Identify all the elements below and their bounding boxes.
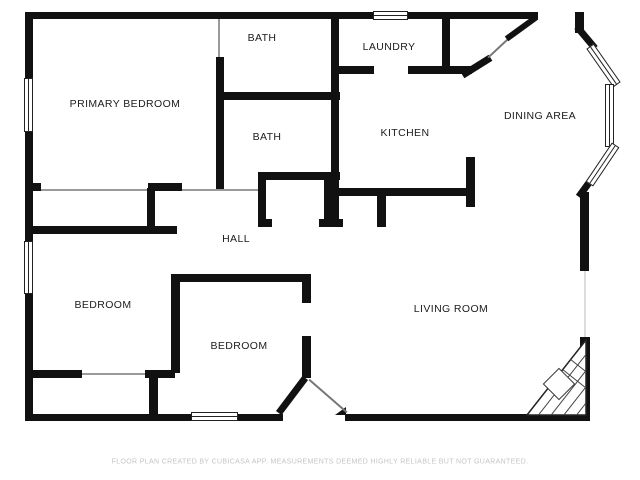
wall-hall-closet-top — [258, 172, 340, 180]
wall-hall-closet-left — [258, 180, 266, 219]
room-label-bedroom-left: BEDROOM — [74, 299, 131, 311]
wall-bedroom-left-bottom-a — [33, 370, 82, 378]
room-label-kitchen: KITCHEN — [381, 127, 430, 139]
wall-top-left — [25, 12, 375, 19]
window-left-primary-bedroom — [24, 78, 33, 132]
floor-plan: PRIMARY BEDROOM BATH BATH LAUNDRY KITCHE… — [0, 0, 640, 480]
wall-kitchen-left-foot — [331, 219, 343, 227]
wall-top-right — [407, 12, 538, 19]
room-label-laundry: LAUNDRY — [363, 41, 416, 53]
wall-primary-closet-left-stub — [33, 183, 41, 191]
wall-bottom-middle — [236, 414, 283, 421]
wall-bath-divider — [220, 92, 340, 100]
room-label-bedroom-lower: BEDROOM — [210, 340, 267, 352]
disclaimer-text: FLOOR PLAN CREATED BY CUBICASA APP. MEAS… — [112, 459, 529, 466]
room-label-living-room: LIVING ROOM — [414, 303, 488, 315]
window-bay-lower — [586, 143, 620, 187]
opening-hall-primary — [182, 189, 258, 191]
wall-kitchen-right — [466, 157, 475, 207]
opening-bath-upper — [218, 19, 220, 58]
door-leaf-entry — [276, 376, 308, 415]
wall-left-upper — [25, 12, 33, 80]
wall-hall-closet-left-foot — [258, 219, 272, 227]
window-bay-middle — [605, 84, 614, 147]
room-label-dining-area: DINING AREA — [504, 110, 576, 122]
window-top-laundry — [373, 11, 408, 20]
fireplace-icon — [526, 339, 587, 416]
wall-right-opening — [584, 271, 586, 337]
room-label-hall: HALL — [222, 233, 250, 245]
wall-kitchen-stub-down — [377, 196, 386, 227]
wall-bedroom-lower-top — [171, 274, 311, 282]
wall-right-upper — [580, 192, 589, 271]
window-bottom-bedroom — [191, 412, 238, 421]
wall-closet-strip-vertical — [149, 370, 158, 421]
room-label-primary-bedroom: PRIMARY BEDROOM — [70, 98, 181, 110]
wall-laundry-bottom-left — [331, 66, 374, 74]
wall-bedroom-lower-right-upper — [302, 282, 311, 303]
window-left-bedroom — [24, 241, 33, 294]
closet-doors-primary — [41, 189, 148, 191]
door-swing-entry — [308, 379, 347, 413]
room-label-bath-upper: BATH — [248, 32, 277, 44]
wall-primary-bath — [216, 57, 224, 191]
wall-left-lower — [25, 292, 33, 421]
wall-bottom-left — [25, 414, 193, 421]
wall-bedroom-lower-right-lower — [302, 336, 311, 378]
closet-doors-bedroom-left — [82, 373, 145, 375]
wall-bedroom-lower-left — [171, 282, 180, 373]
window-bay-upper — [586, 44, 620, 88]
wall-kitchen-bottom — [337, 188, 470, 196]
room-label-bath-lower: BATH — [253, 131, 282, 143]
wall-bedroom-left-top — [25, 226, 177, 234]
